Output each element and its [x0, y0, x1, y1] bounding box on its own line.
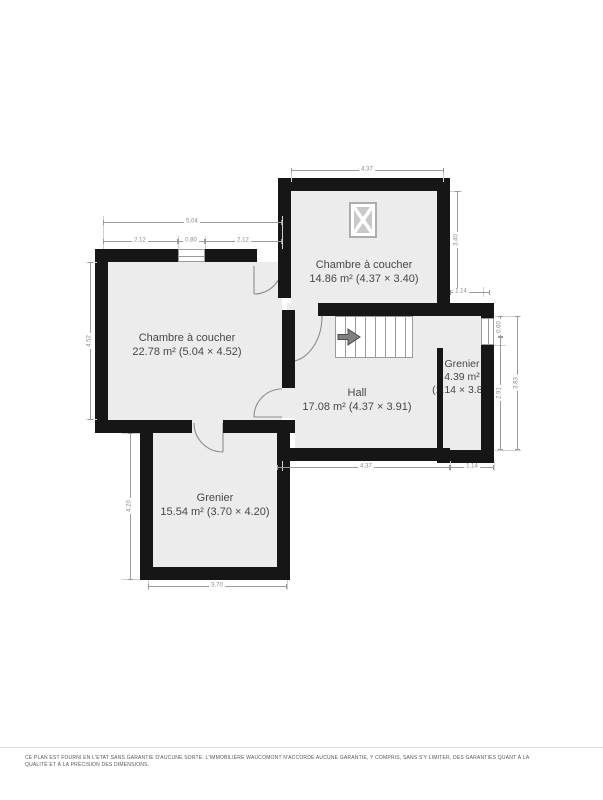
extension-line [282, 461, 283, 471]
wall [140, 567, 288, 580]
wall [437, 450, 494, 463]
dim-label-bed2-seg2: 2.12 [235, 238, 251, 245]
window [481, 318, 494, 345]
wall [277, 448, 450, 461]
wall [277, 420, 290, 580]
disclaimer-line-1: CE PLAN EST FOURNI EN L'ETAT SANS GARANT… [25, 755, 585, 762]
footer-divider [0, 747, 603, 748]
dim-label-hall-width: 4.37 [358, 464, 374, 471]
wall [95, 249, 108, 433]
wall [278, 178, 291, 298]
dim-label-grenier2-height: 4.20 [127, 498, 134, 514]
dim-label-bed2-window: 0.80 [183, 238, 199, 245]
dim-label-top-width: 4.37 [359, 167, 375, 174]
dim-label-bed1-height: 3.40 [454, 232, 461, 248]
dim-label-bed2-width: 5.04 [184, 219, 200, 226]
extension-line [287, 580, 288, 590]
wall [140, 420, 153, 580]
wall [481, 345, 494, 463]
wall [278, 178, 450, 191]
dim-label-grenier1-win: 0.60 [497, 319, 504, 335]
window-glass-line [488, 319, 489, 344]
floor-plan: Chambre à coucher 14.86 m² (4.37 × 3.40)… [0, 0, 603, 800]
dim-label-grenier1-inner: 2.91 [497, 385, 504, 401]
dim-label-grenier2-width: 3.70 [209, 583, 225, 590]
extension-line [282, 216, 283, 249]
stairs-arrow-icon [335, 316, 413, 358]
window-glass-line [179, 256, 204, 257]
wall [318, 303, 494, 316]
disclaimer: CE PLAN EST FOURNI EN L'ETAT SANS GARANT… [25, 755, 585, 769]
dim-label-grenier1-width-top: 1.14 [453, 289, 469, 296]
window [178, 249, 205, 262]
dim-label-grenier1-width-bottom: 1.14 [464, 464, 480, 471]
disclaimer-line-2: QUALITÉ ET À LA PRÉCISION DES DIMENSIONS… [25, 762, 585, 769]
wall-partition [437, 348, 443, 452]
wall [205, 249, 257, 262]
extension-line [494, 461, 495, 471]
dim-label-bed2-seg1: 2.12 [132, 238, 148, 245]
dim-label-bed2-height: 4.52 [87, 333, 94, 349]
dim-label-grenier1-outer: 3.83 [514, 375, 521, 391]
wall [282, 310, 295, 388]
wall [437, 178, 450, 316]
wall [481, 303, 494, 318]
extension-line [495, 450, 521, 451]
